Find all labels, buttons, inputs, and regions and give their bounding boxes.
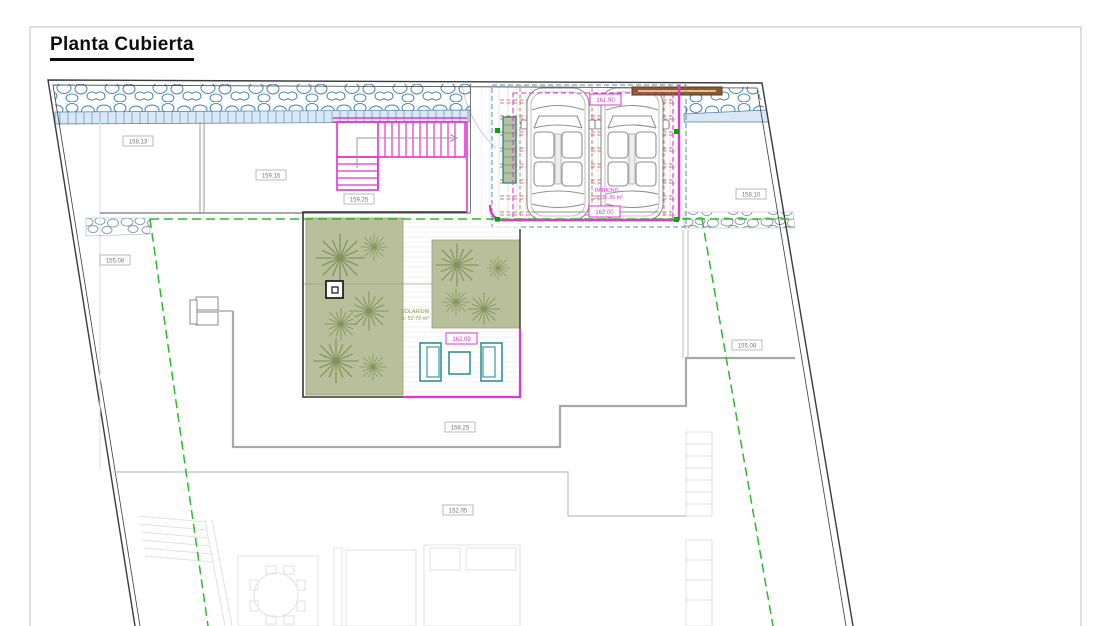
level-tag-155-08-left: 155.08 — [100, 255, 130, 265]
car-1 — [521, 88, 595, 220]
svg-text:159.25: 159.25 — [350, 198, 369, 204]
spot-level-parking-bottom: 162.00 — [589, 206, 620, 217]
level-tag-152-05: 152.05 — [443, 505, 473, 515]
svg-text:158.10: 158.10 — [742, 193, 761, 199]
svg-text:159.15: 159.15 — [262, 174, 281, 180]
level-tag-159-25: 159.25 — [344, 194, 374, 204]
green-roof-area-1 — [306, 218, 403, 395]
skylight-symbol — [326, 281, 343, 298]
svg-text:158.13: 158.13 — [129, 140, 148, 146]
stone-wall-gray-left — [86, 218, 150, 236]
svg-text:162.09: 162.09 — [452, 337, 471, 343]
level-tag-158-25: 158.25 — [445, 422, 475, 432]
coffee-table — [449, 352, 470, 374]
spot-level-parking-top: 161.90 — [590, 94, 621, 105]
svg-text:PARKING: PARKING — [595, 188, 619, 194]
spot-level-solarium: 162.09 — [446, 333, 477, 344]
level-tag-159-15: 159.15 — [256, 170, 286, 180]
parking-area-label: PARKING S: 36.35 m² — [595, 188, 623, 201]
planter — [503, 117, 516, 183]
svg-text:155.08: 155.08 — [106, 259, 125, 265]
level-tag-158-13: 158.13 — [123, 136, 153, 146]
svg-text:161.90: 161.90 — [596, 98, 615, 104]
svg-text:155.08: 155.08 — [738, 344, 757, 350]
svg-text:S: 52.70 m²: S: 52.70 m² — [401, 316, 429, 322]
floor-plan-drawing: 158.13 159.15 159.25 158.10 155.08 155.0… — [0, 0, 1110, 626]
plan-title: Planta Cubierta — [50, 34, 194, 61]
level-tag-158-10: 158.10 — [736, 189, 766, 199]
level-tag-155-08-right: 155.08 — [732, 340, 762, 350]
solarium-terrace — [303, 212, 520, 397]
svg-text:SOLARIUM: SOLARIUM — [401, 309, 430, 315]
svg-text:152.05: 152.05 — [449, 509, 468, 515]
solarium-area-label: SOLARIUM S: 52.70 m² — [401, 309, 430, 322]
svg-text:162.00: 162.00 — [595, 210, 614, 216]
stone-wall-gray-right — [684, 212, 795, 228]
drawing-canvas: Planta Cubierta — [0, 0, 1110, 626]
svg-text:S: 36.35 m²: S: 36.35 m² — [595, 195, 623, 201]
svg-text:158.25: 158.25 — [451, 426, 470, 432]
